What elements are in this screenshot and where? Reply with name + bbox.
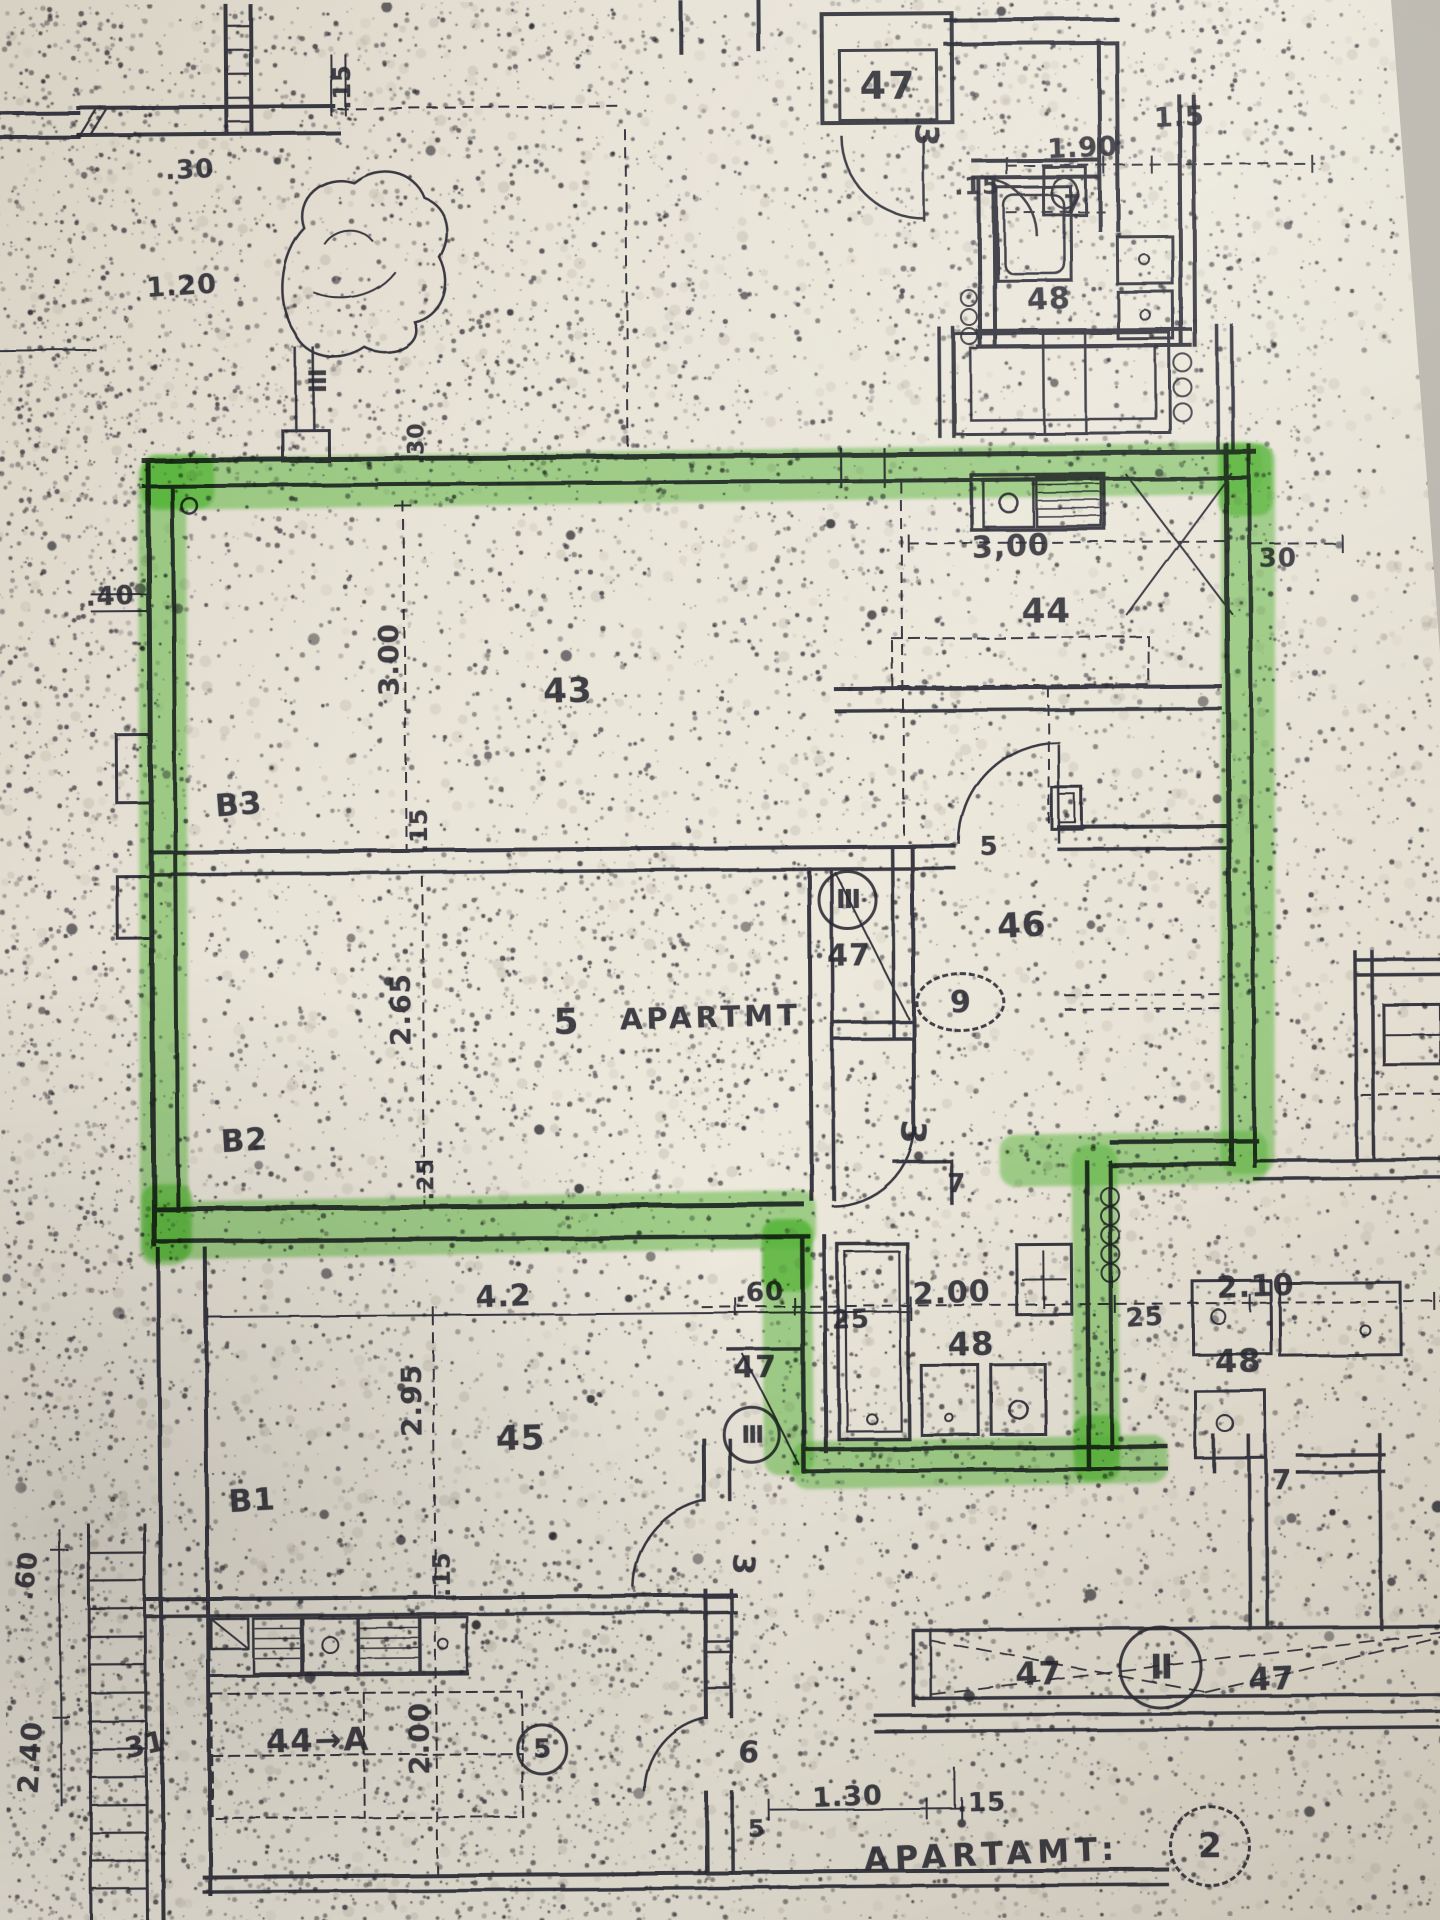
- room-b2: B2: [220, 1121, 269, 1160]
- radiator-top: [960, 289, 978, 307]
- dim-30-right: 30: [1259, 543, 1297, 573]
- dim-7-top: 7: [1063, 190, 1082, 220]
- dim-6-bottom: 6: [737, 1734, 762, 1771]
- dim-190-top: 1.90: [1047, 131, 1119, 165]
- label-apartamt: APARTAMT:: [863, 1829, 1120, 1878]
- tag-iii-courtyard: III: [302, 368, 330, 392]
- room-44a: 44→A: [266, 1720, 371, 1761]
- room-44-kitchen: 44: [1021, 591, 1071, 631]
- room-47-balcony-right: 47: [1248, 1659, 1296, 1699]
- room-48-right: 48: [1214, 1341, 1261, 1380]
- radiator-bath: [1100, 1263, 1120, 1283]
- window-tag-3-top: 3: [907, 122, 947, 148]
- dim-7-bath: 7: [947, 1169, 966, 1199]
- window-tag-circle-ii-balcony: II: [1118, 1625, 1203, 1710]
- floor-plan-photo: 47 .30.151.20III.301.901.5.157483,003044…: [0, 0, 1440, 1920]
- window-tag-circle-iii-lower: III: [723, 1406, 781, 1464]
- room-43-living: 43: [543, 671, 593, 712]
- dim-030-courtyard-vertical: .30: [404, 422, 429, 464]
- dim-040-left: .40: [85, 581, 135, 613]
- dim-200-bath: 2.00: [912, 1274, 991, 1312]
- room-47-mid: 47: [733, 1350, 777, 1385]
- dim-060-mid: .60: [734, 1277, 784, 1309]
- plan-labels: 47 .30.151.20III.301.901.5.157483,003044…: [0, 0, 1440, 1920]
- dim-240-left-vertical: 2.40: [12, 1720, 49, 1795]
- apartment-tag-5: 5: [516, 1723, 568, 1775]
- window-tag-3-bottom: 3: [724, 1553, 761, 1578]
- dim-300-left-vertical: 3.00: [372, 623, 406, 696]
- dim-130-bottom: 1.30: [812, 1780, 884, 1814]
- dim-265-vertical: 2.65: [384, 973, 418, 1046]
- radiator-bath: [1100, 1225, 1120, 1245]
- window-tag-circle-iii-corridor: III: [817, 870, 877, 930]
- room-47-balcony-left: 47: [1015, 1654, 1062, 1693]
- dim-015-vertical-44a: .15: [428, 1551, 456, 1597]
- dim-15-topright: 1.5: [1153, 101, 1205, 134]
- label-apartment-5: 5: [553, 1002, 579, 1043]
- floor-plan: 47 .30.151.20III.301.901.5.157483,003044…: [0, 0, 1440, 1920]
- dim-025-vertical: .25: [414, 1158, 439, 1200]
- room-tag-47: 47: [860, 63, 917, 107]
- dim-060-left-vertical: .60: [9, 1549, 44, 1601]
- dim-5-door: 5: [979, 832, 998, 862]
- room-48-bath: 48: [947, 1324, 994, 1363]
- radiator-bath: [1100, 1187, 1120, 1207]
- radiator-top: [960, 327, 978, 345]
- dim-7-right: 7: [1272, 1463, 1293, 1496]
- radiator-bath: [1100, 1206, 1120, 1226]
- radiator-top: [960, 308, 978, 326]
- stove-burners-top-right: [1172, 377, 1192, 397]
- dim-120-topleft: 1.20: [146, 269, 218, 304]
- radiator-bath: [1100, 1244, 1120, 1264]
- stove-burners-top-right: [1172, 352, 1192, 372]
- room-47-shaft: 47: [827, 938, 871, 973]
- room-45: 45: [496, 1418, 546, 1459]
- dim-015-mid-vertical: .15: [405, 807, 433, 853]
- dim-5-bottom: 5: [748, 1815, 766, 1843]
- dim-015-bottom: .15: [957, 1787, 1007, 1818]
- dim-200-vertical-44a: 2.00: [402, 1702, 436, 1775]
- dim-300-kitchen: 3,00: [971, 528, 1050, 566]
- stove-burners-top-right: [1173, 402, 1193, 422]
- dim-25-bath-right: 25: [1125, 1302, 1165, 1334]
- apartment-tag-9: 9: [915, 972, 1005, 1033]
- apartment-tag-2: 2: [1169, 1805, 1252, 1888]
- dim-25-bath-left: 25: [831, 1304, 870, 1336]
- room-b3: B3: [214, 785, 264, 825]
- label-31: 31: [122, 1724, 169, 1765]
- dim-030-topleft: .30: [165, 154, 215, 186]
- room-tag-47-inner: 47: [838, 48, 939, 122]
- dim-015-topleft-vertical: .15: [328, 64, 356, 110]
- dim-015-top: .15: [954, 171, 1000, 200]
- room-46: 46: [996, 904, 1048, 947]
- dim-295-vertical: 2.95: [395, 1364, 429, 1437]
- room-tag-47-box: 47: [820, 11, 955, 125]
- dim-42: 4.2: [475, 1278, 533, 1315]
- room-b1: B1: [228, 1481, 277, 1520]
- room-48-top: 48: [1026, 281, 1071, 318]
- label-apartmt: APARTMT: [620, 998, 802, 1037]
- dim-210-right: 2.10: [1216, 1268, 1295, 1306]
- window-tag-3-mid: 3: [891, 1119, 933, 1147]
